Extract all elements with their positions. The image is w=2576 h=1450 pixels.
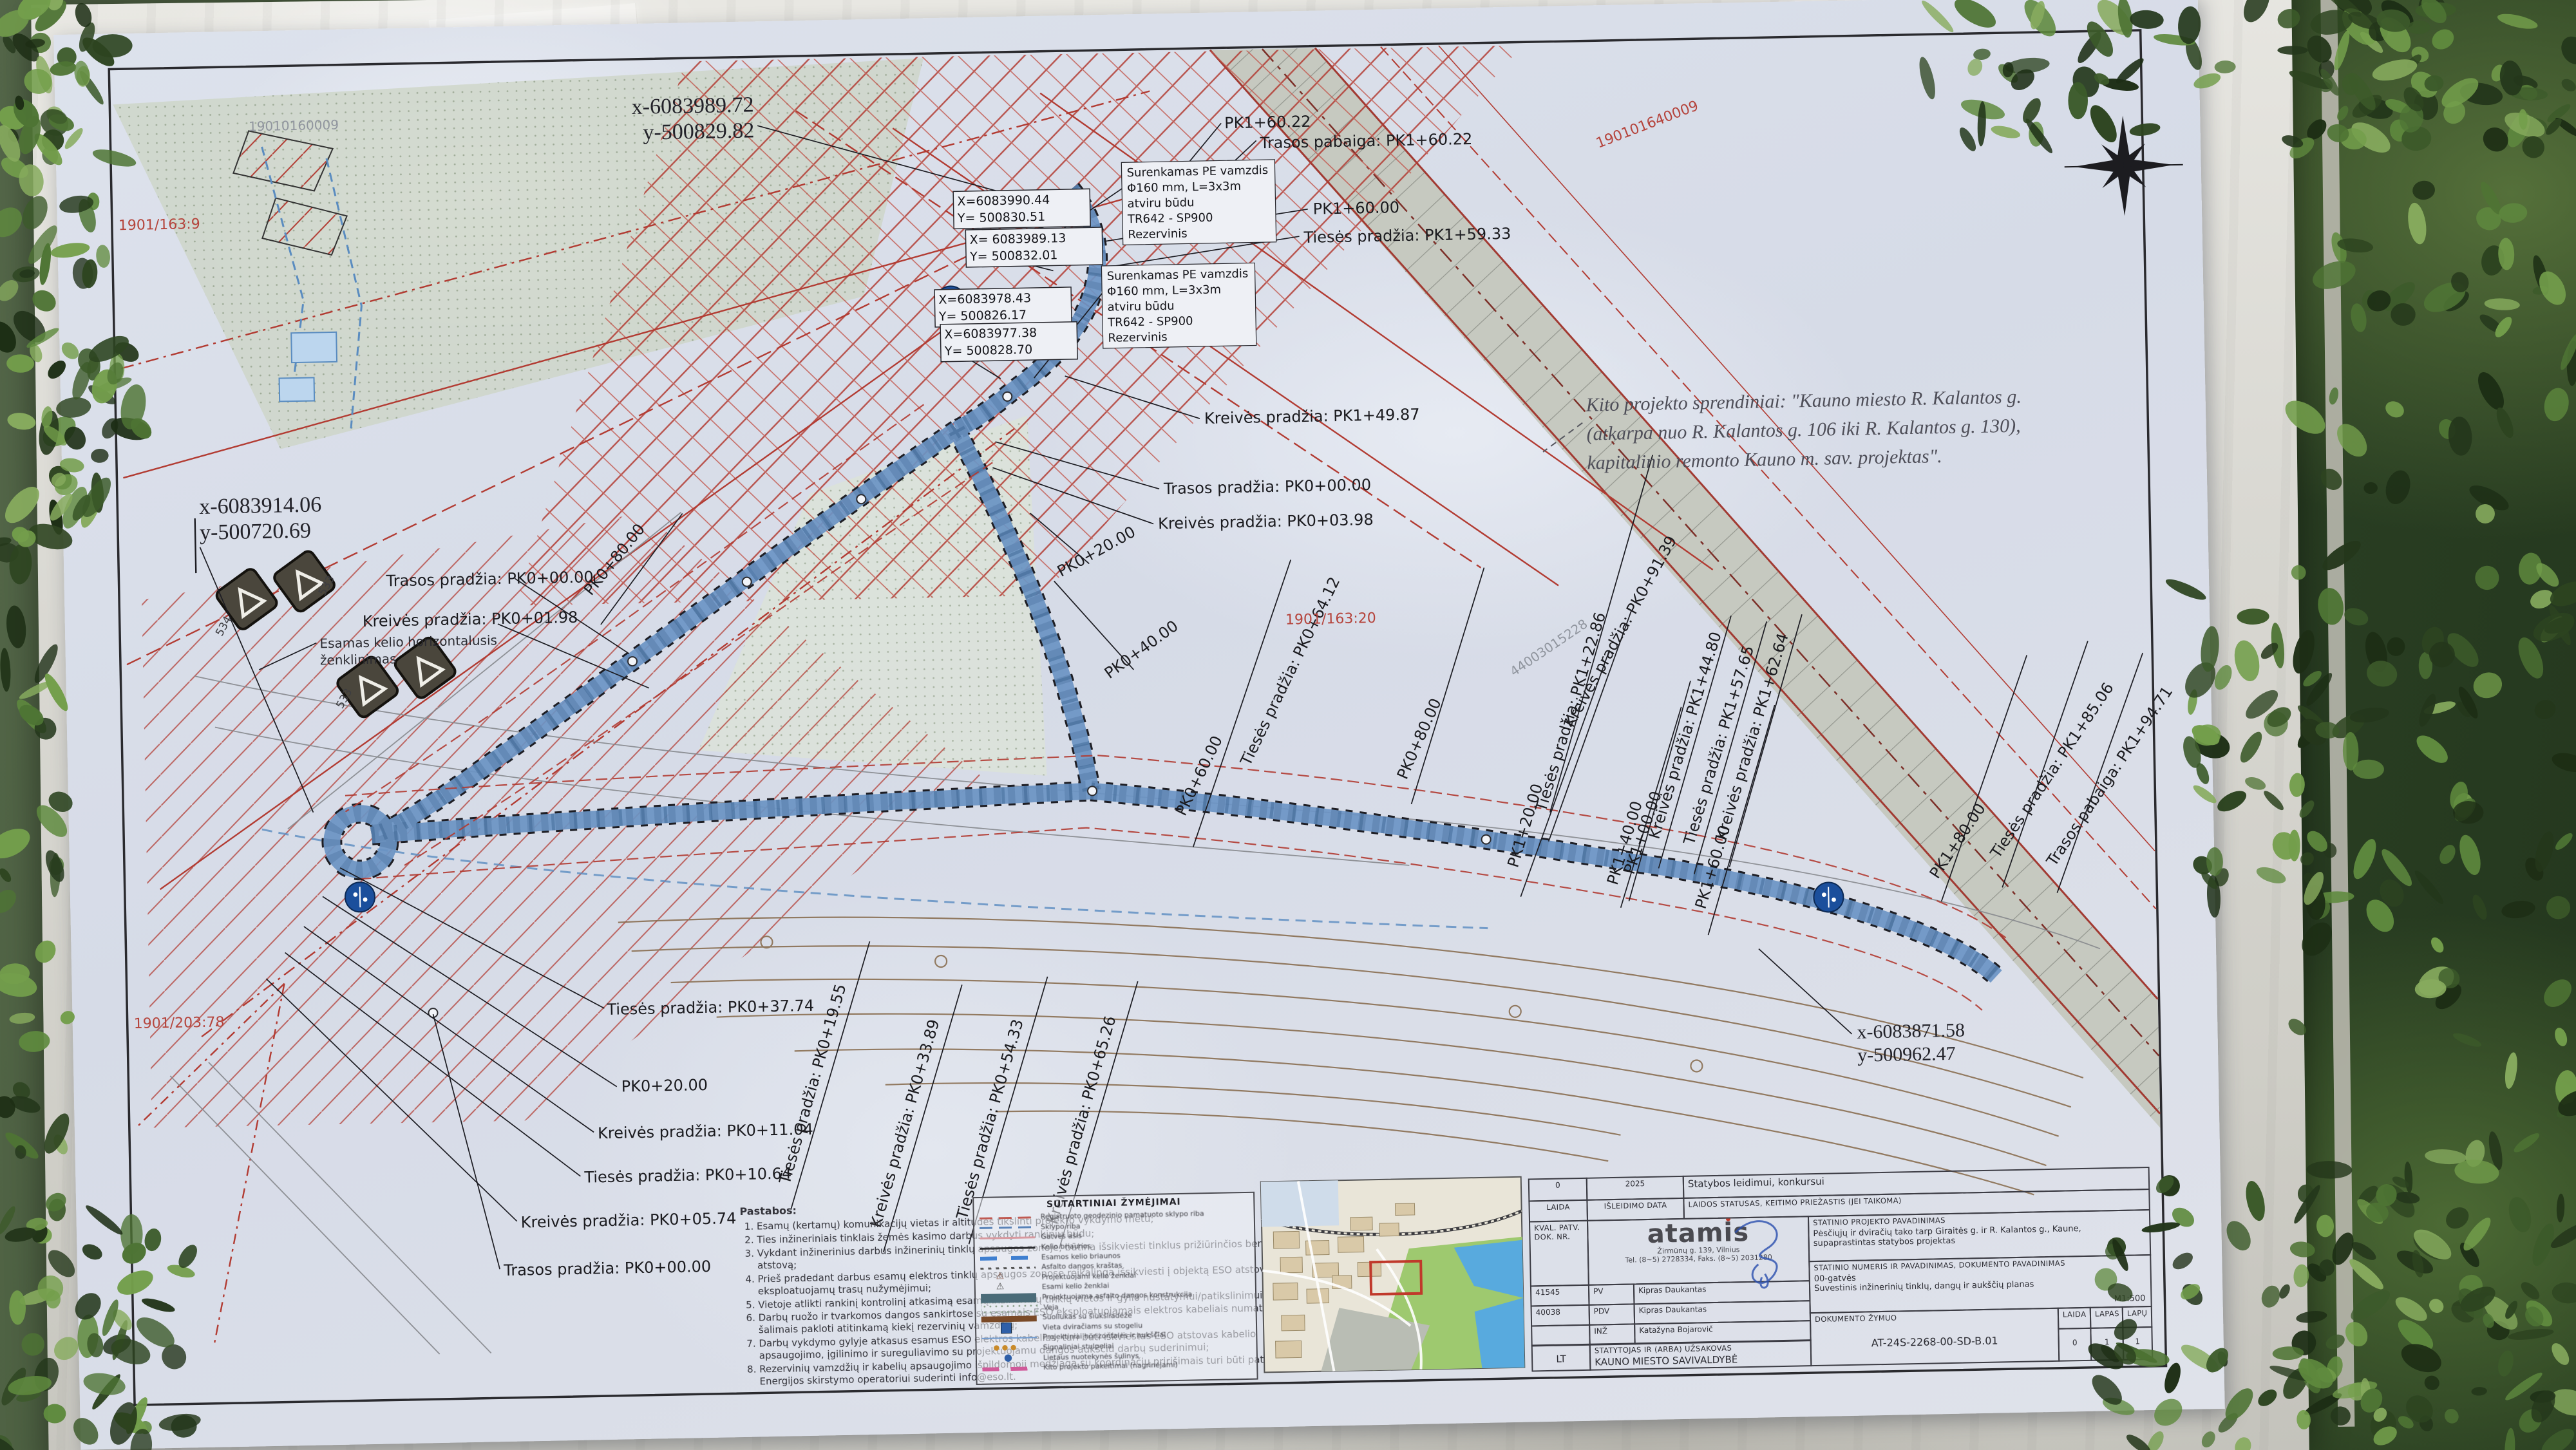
leaf <box>2429 25 2458 53</box>
leaf <box>2556 32 2576 69</box>
leaf <box>2470 668 2505 702</box>
leaf <box>2442 1203 2473 1233</box>
leaf <box>2342 732 2359 771</box>
leaf <box>18 1030 51 1053</box>
leaf <box>2512 1130 2542 1155</box>
leaf <box>0 481 45 529</box>
leaf <box>2192 70 2222 91</box>
leaf <box>2164 576 2208 603</box>
leaf <box>2199 1429 2218 1449</box>
leaf <box>2296 917 2338 961</box>
leaf <box>2553 831 2575 852</box>
photo-of-plan-board: PK1+60.22Trasos pabaiga: PK1+60.22PK1+60… <box>0 0 2576 1450</box>
leaf <box>2427 1296 2447 1316</box>
leaf <box>2277 46 2307 55</box>
leaf <box>2309 256 2359 294</box>
leaf <box>2214 787 2249 816</box>
leaf <box>0 1431 21 1450</box>
leaf <box>1990 124 2022 140</box>
leaf <box>2498 202 2528 223</box>
leaf <box>31 937 59 967</box>
leaf <box>114 1266 157 1300</box>
leaf <box>2331 29 2353 71</box>
leaf <box>2124 1431 2154 1450</box>
leaf <box>2501 899 2537 920</box>
leaf <box>2442 1406 2461 1426</box>
leaf <box>2548 1341 2573 1368</box>
leaf <box>2452 1031 2483 1050</box>
leaf <box>2335 104 2351 122</box>
leaf <box>2255 1386 2280 1409</box>
foliage-overlay <box>0 0 2576 1450</box>
leaf <box>2232 1435 2254 1450</box>
leaf <box>2331 419 2373 462</box>
leaf <box>2403 1162 2414 1194</box>
leaf <box>2392 1292 2431 1326</box>
leaf <box>2423 1373 2441 1392</box>
leaf <box>2412 868 2447 907</box>
leaf <box>2295 1310 2327 1324</box>
leaf <box>2470 893 2490 922</box>
leaf <box>2110 1315 2141 1344</box>
leaf <box>143 1227 164 1253</box>
leaf <box>2289 773 2306 798</box>
leaf <box>58 1008 77 1026</box>
leaf <box>2541 386 2571 424</box>
leaf <box>2537 1424 2576 1450</box>
leaf <box>5 605 28 649</box>
leaf <box>2363 482 2378 494</box>
leaf <box>17 1329 49 1361</box>
leaf <box>68 1413 103 1449</box>
leaf <box>2518 1279 2543 1303</box>
leaf <box>2479 123 2513 156</box>
leaf <box>42 848 68 885</box>
leaf <box>2239 0 2275 26</box>
leaf <box>2289 830 2300 862</box>
leaf <box>2289 1240 2316 1258</box>
leaf <box>6 354 34 373</box>
leaf <box>2231 638 2263 684</box>
leaf <box>2405 202 2429 245</box>
leaf <box>2471 1387 2487 1397</box>
leaf <box>2341 1318 2372 1351</box>
leaf <box>2473 368 2509 414</box>
leaf <box>0 823 35 865</box>
leaf <box>9 1012 35 1025</box>
leaf <box>2302 31 2337 68</box>
leaf <box>2349 836 2380 882</box>
leaf <box>2556 1194 2565 1223</box>
leaf <box>2324 1332 2347 1352</box>
leaf <box>2280 394 2331 440</box>
leaf <box>2128 121 2161 138</box>
leaf <box>2289 628 2318 676</box>
leaf <box>44 1404 66 1424</box>
leaf <box>2316 586 2346 626</box>
leaf <box>2262 788 2286 812</box>
leaf <box>2353 760 2383 779</box>
leaf <box>0 867 14 884</box>
leaf <box>2318 536 2365 575</box>
leaf <box>2436 842 2458 867</box>
leaf <box>95 244 111 268</box>
leaf <box>2496 11 2539 32</box>
leaf <box>2237 729 2266 766</box>
leaf <box>2170 1249 2195 1272</box>
leaf <box>55 395 92 420</box>
leaf <box>91 146 137 170</box>
leaf <box>2453 801 2483 824</box>
leaf <box>9 1290 26 1325</box>
leaf <box>44 357 69 382</box>
leaf <box>2346 1285 2394 1326</box>
leaf <box>2546 896 2571 920</box>
leaf <box>2484 297 2520 311</box>
leaf <box>2493 406 2517 440</box>
leaf <box>2429 935 2446 955</box>
leaf <box>2411 180 2436 201</box>
leaf <box>2559 77 2576 94</box>
leaf <box>2222 1217 2256 1255</box>
leaf <box>2532 697 2558 722</box>
leaf <box>2507 1327 2554 1342</box>
leaf <box>82 1370 127 1398</box>
leaf <box>2550 749 2576 775</box>
leaf <box>50 240 91 259</box>
leaf <box>1919 0 1956 35</box>
leaf <box>2291 565 2306 579</box>
leaf <box>2244 775 2268 792</box>
leaf <box>2130 10 2164 30</box>
leaf <box>2472 563 2502 594</box>
leaf <box>2553 1026 2570 1048</box>
leaf <box>2161 1361 2183 1395</box>
leaf <box>90 448 109 464</box>
leaf <box>6 411 37 431</box>
leaf <box>2191 782 2219 805</box>
leaf <box>2085 101 2122 146</box>
leaf <box>2342 605 2370 628</box>
leaf <box>2412 731 2452 768</box>
leaf <box>2214 60 2236 73</box>
leaf <box>17 192 52 233</box>
leaf <box>2259 1283 2283 1310</box>
leaf <box>2141 1220 2181 1234</box>
leaf <box>2068 82 2088 119</box>
leaf <box>1956 125 1979 153</box>
leaf <box>2275 6 2302 32</box>
leaf <box>2505 1194 2535 1235</box>
leaf <box>2298 850 2316 869</box>
leaf <box>2316 1214 2334 1238</box>
leaf <box>2306 1161 2352 1180</box>
leaf <box>28 286 59 315</box>
leaf <box>2297 798 2316 820</box>
leaf <box>2383 398 2407 420</box>
leaf <box>2386 636 2406 657</box>
leaf <box>2242 1179 2268 1223</box>
leaf <box>2237 608 2269 625</box>
leaf <box>2019 95 2044 126</box>
leaf <box>80 1241 105 1263</box>
leaf <box>2504 1427 2516 1450</box>
leaf <box>2328 386 2340 405</box>
leaf <box>2382 467 2414 507</box>
leaf <box>2456 833 2485 878</box>
leaf <box>2293 1264 2310 1288</box>
leaf <box>2539 974 2576 1013</box>
leaf <box>1917 55 1938 100</box>
leaf <box>83 1202 125 1238</box>
leaf <box>0 648 12 692</box>
leaf <box>2495 1349 2515 1378</box>
leaf <box>2255 864 2288 887</box>
leaf <box>2346 1256 2387 1294</box>
leaf <box>1950 0 2000 33</box>
leaf <box>39 1110 74 1157</box>
leaf <box>140 1295 176 1315</box>
leaf <box>0 885 21 918</box>
leaf <box>2149 1393 2188 1431</box>
leaf <box>2503 1051 2519 1089</box>
leaf <box>2286 1015 2309 1039</box>
leaf <box>2316 464 2346 494</box>
leaf <box>41 671 71 713</box>
leaf <box>2552 1281 2576 1304</box>
leaf <box>2329 1405 2352 1426</box>
